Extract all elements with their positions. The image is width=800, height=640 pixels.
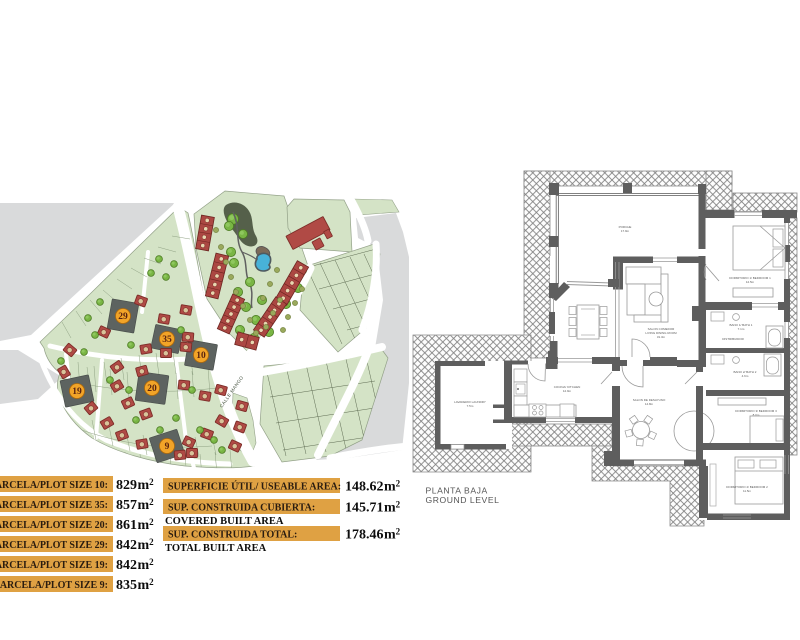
svg-text:SUP. CONSTRUIDA TOTAL:: SUP. CONSTRUIDA TOTAL: <box>168 530 297 541</box>
svg-text:ARCELA/PLOT SIZE 29:: ARCELA/PLOT SIZE 29: <box>0 540 108 551</box>
svg-text:11.5m: 11.5m <box>743 489 752 493</box>
svg-text:35: 35 <box>162 335 172 345</box>
svg-text:14.8m: 14.8m <box>645 402 654 406</box>
svg-text:DISTRIBUIDOR: DISTRIBUIDOR <box>722 337 744 341</box>
svg-text:857m2: 857m2 <box>116 497 154 513</box>
svg-text:829m2: 829m2 <box>116 477 154 493</box>
svg-text:17.9m: 17.9m <box>621 229 630 233</box>
svg-text:145.71m2: 145.71m2 <box>345 500 401 516</box>
svg-text:12.9m: 12.9m <box>563 389 572 393</box>
svg-text:12.5m: 12.5m <box>746 280 755 284</box>
svg-text:GROUND LEVEL: GROUND LEVEL <box>426 495 500 505</box>
svg-text:148.62m2: 148.62m2 <box>345 479 401 495</box>
svg-text:9: 9 <box>165 442 170 452</box>
svg-text:SUPERFICIE ÚTIL/ USEABLE AREA:: SUPERFICIE ÚTIL/ USEABLE AREA: <box>168 481 341 493</box>
svg-text:TOTAL BUILT AREA: TOTAL BUILT AREA <box>165 543 267 554</box>
svg-text:7.1m: 7.1m <box>738 327 745 331</box>
svg-text:SUP. CONSTRUIDA CUBIERTA:: SUP. CONSTRUIDA CUBIERTA: <box>168 503 315 514</box>
svg-text:29: 29 <box>118 312 128 322</box>
svg-text:7.5m: 7.5m <box>467 404 474 408</box>
svg-text:ARCELA/PLOT SIZE 20:: ARCELA/PLOT SIZE 20: <box>0 520 108 531</box>
svg-text:178.46m2: 178.46m2 <box>345 527 401 543</box>
svg-text:ARCELA/PLOT SIZE 19:: ARCELA/PLOT SIZE 19: <box>0 560 108 571</box>
svg-text:ARCELA/PLOT SIZE 9:: ARCELA/PLOT SIZE 9: <box>0 580 108 591</box>
svg-text:842m2: 842m2 <box>116 557 154 573</box>
svg-text:835m2: 835m2 <box>116 577 154 593</box>
svg-text:20: 20 <box>147 384 157 394</box>
svg-text:ARCELA/PLOT SIZE 10:: ARCELA/PLOT SIZE 10: <box>0 480 108 491</box>
svg-text:ARCELA/PLOT SIZE 35:: ARCELA/PLOT SIZE 35: <box>0 500 108 511</box>
svg-text:4.6m: 4.6m <box>742 374 749 378</box>
svg-text:COVERED BUILT AREA: COVERED BUILT AREA <box>165 516 284 527</box>
svg-text:10: 10 <box>196 351 206 361</box>
svg-text:842m2: 842m2 <box>116 537 154 553</box>
svg-text:PLANTA BAJA: PLANTA BAJA <box>426 486 488 496</box>
svg-text:19: 19 <box>72 387 82 397</box>
svg-text:861m2: 861m2 <box>116 517 154 533</box>
svg-text:31.3m: 31.3m <box>657 335 666 339</box>
